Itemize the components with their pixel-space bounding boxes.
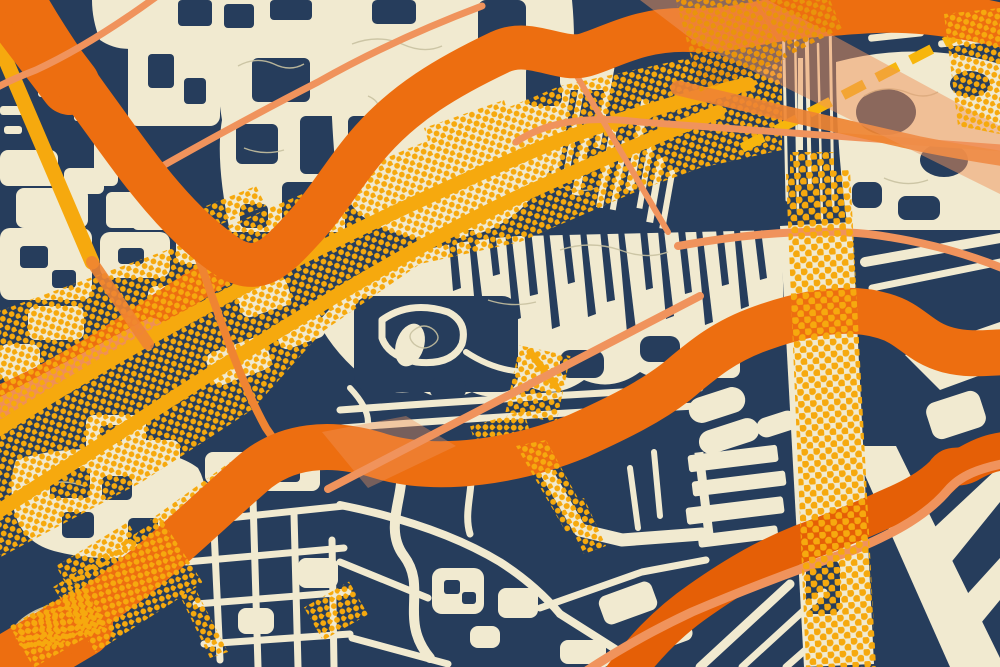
- map-art-svg: [0, 0, 1000, 667]
- map-art-canvas: [0, 0, 1000, 667]
